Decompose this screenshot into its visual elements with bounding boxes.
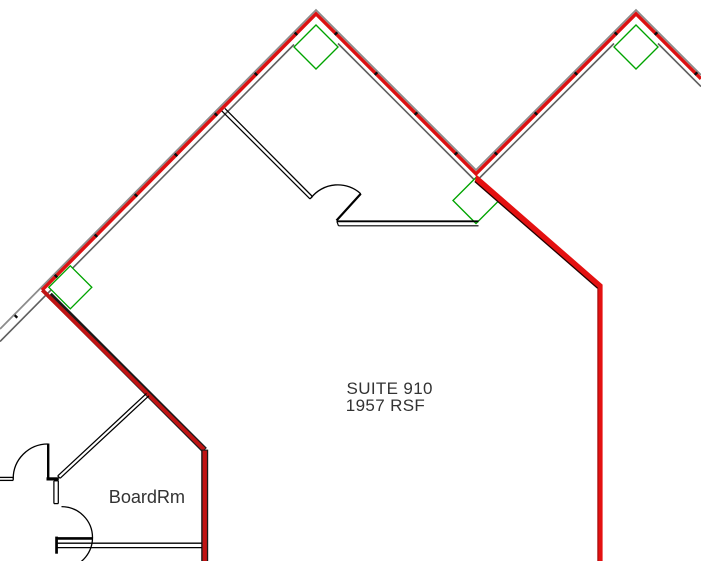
- svg-text:BoardRm: BoardRm: [109, 487, 185, 507]
- svg-text:1957 RSF: 1957 RSF: [346, 396, 425, 415]
